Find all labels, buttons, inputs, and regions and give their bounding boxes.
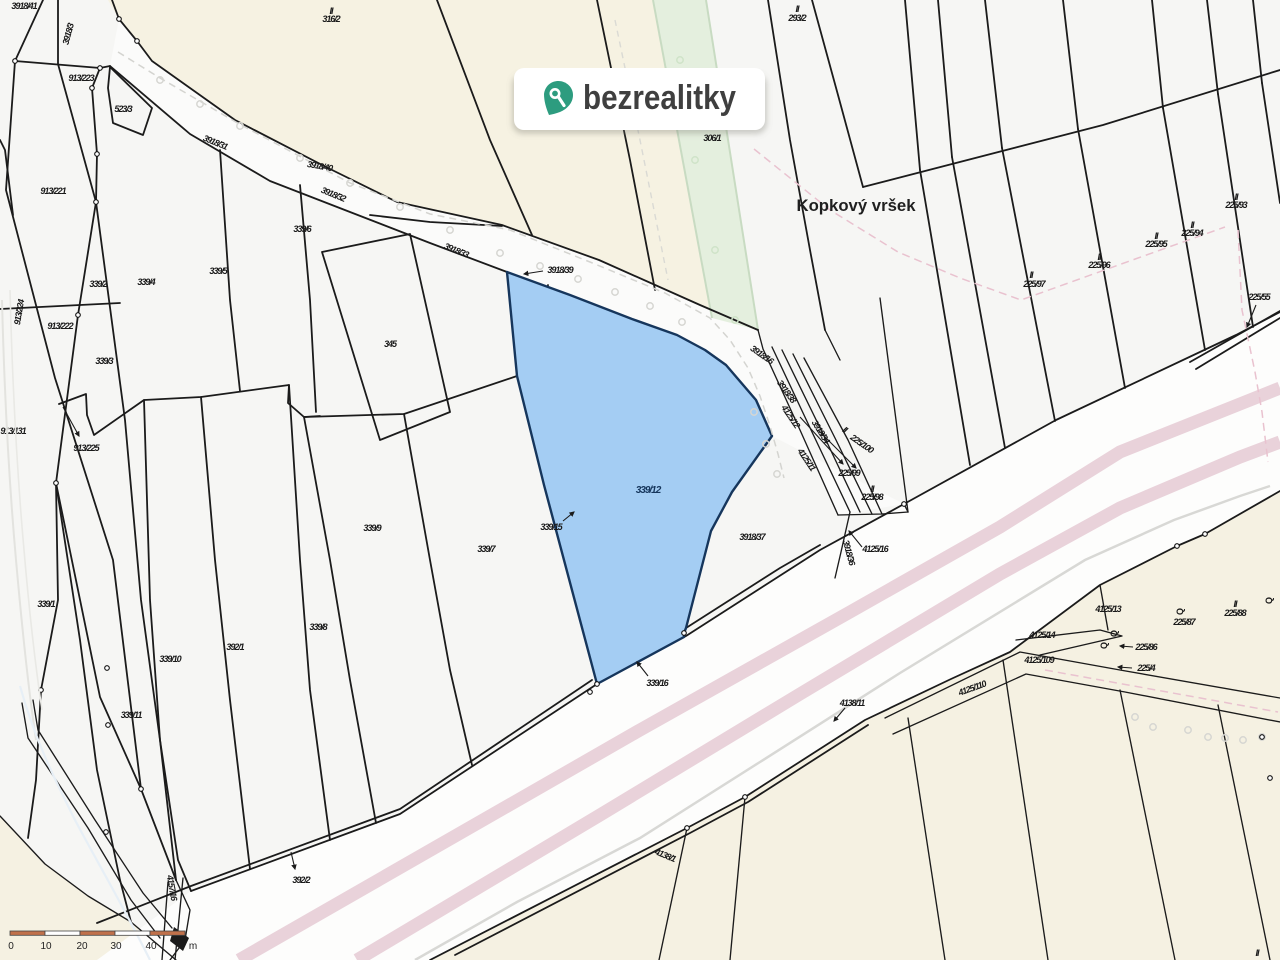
svg-text:40: 40 — [145, 941, 157, 952]
svg-text:339/16: 339/16 — [646, 678, 669, 688]
svg-text:225/96: 225/96 — [1087, 260, 1111, 270]
svg-text:316/2: 316/2 — [322, 14, 340, 24]
svg-text:m: m — [189, 941, 197, 952]
svg-text:306/1: 306/1 — [703, 133, 721, 143]
svg-text:225/97: 225/97 — [1022, 279, 1046, 289]
svg-text:339/8: 339/8 — [309, 622, 327, 632]
svg-text:225/87: 225/87 — [1172, 617, 1196, 627]
svg-text:225/4: 225/4 — [1136, 663, 1155, 673]
svg-text:20: 20 — [76, 941, 88, 952]
svg-text:345: 345 — [384, 339, 398, 349]
svg-text:3918/41: 3918/41 — [11, 1, 37, 11]
svg-text:913/223: 913/223 — [68, 73, 94, 83]
svg-text:339/5: 339/5 — [209, 266, 228, 276]
svg-text:4125/16: 4125/16 — [861, 544, 889, 554]
svg-text:0: 0 — [8, 941, 14, 952]
svg-text:Q: Q — [1175, 608, 1185, 615]
svg-text:339/3: 339/3 — [95, 356, 113, 366]
svg-text:30: 30 — [110, 941, 122, 952]
svg-text:3918/37: 3918/37 — [739, 532, 766, 542]
svg-text:Kopkový vršek: Kopkový vršek — [797, 196, 917, 215]
svg-text:392/2: 392/2 — [292, 875, 310, 885]
svg-text:293/2: 293/2 — [787, 13, 806, 23]
svg-text:913/131: 913/131 — [0, 426, 26, 436]
svg-text:4125/109: 4125/109 — [1023, 655, 1054, 665]
svg-text:339/9: 339/9 — [363, 523, 381, 533]
svg-text:913/225: 913/225 — [73, 443, 100, 453]
svg-text:339/4: 339/4 — [137, 277, 155, 287]
svg-text:913/222: 913/222 — [47, 321, 73, 331]
svg-text:4138/11: 4138/11 — [839, 698, 866, 708]
svg-text:339/15: 339/15 — [540, 522, 563, 532]
svg-text:339/11: 339/11 — [121, 710, 143, 720]
svg-text:339/1: 339/1 — [37, 599, 55, 609]
svg-text:225/99: 225/99 — [837, 468, 860, 478]
svg-text:Q: Q — [1109, 630, 1119, 637]
svg-text:225/55: 225/55 — [1247, 292, 1271, 302]
svg-text:225/94: 225/94 — [1180, 228, 1203, 238]
svg-text:bezrealitky: bezrealitky — [583, 79, 736, 117]
svg-text:339/12: 339/12 — [636, 485, 662, 496]
svg-text:3918/39: 3918/39 — [547, 265, 573, 275]
svg-text:523/3: 523/3 — [114, 104, 132, 114]
svg-text:10: 10 — [40, 941, 52, 952]
svg-text:Q: Q — [1264, 597, 1274, 604]
svg-text:392/1: 392/1 — [226, 642, 244, 652]
svg-text:225/86: 225/86 — [1134, 642, 1158, 652]
svg-text:4125/14: 4125/14 — [1028, 630, 1055, 640]
svg-text:225/98: 225/98 — [860, 492, 883, 502]
svg-text:Q: Q — [1099, 642, 1109, 649]
svg-text:339/6: 339/6 — [293, 224, 312, 234]
svg-text:4125/13: 4125/13 — [1094, 604, 1121, 614]
svg-text:225/93: 225/93 — [1224, 200, 1247, 210]
svg-text:913/221: 913/221 — [40, 186, 66, 196]
svg-text:225/88: 225/88 — [1223, 608, 1246, 618]
svg-text:225/95: 225/95 — [1144, 239, 1168, 249]
svg-text:339/7: 339/7 — [477, 544, 496, 554]
svg-text:339/2: 339/2 — [89, 279, 107, 289]
svg-text:339/10: 339/10 — [159, 654, 181, 664]
